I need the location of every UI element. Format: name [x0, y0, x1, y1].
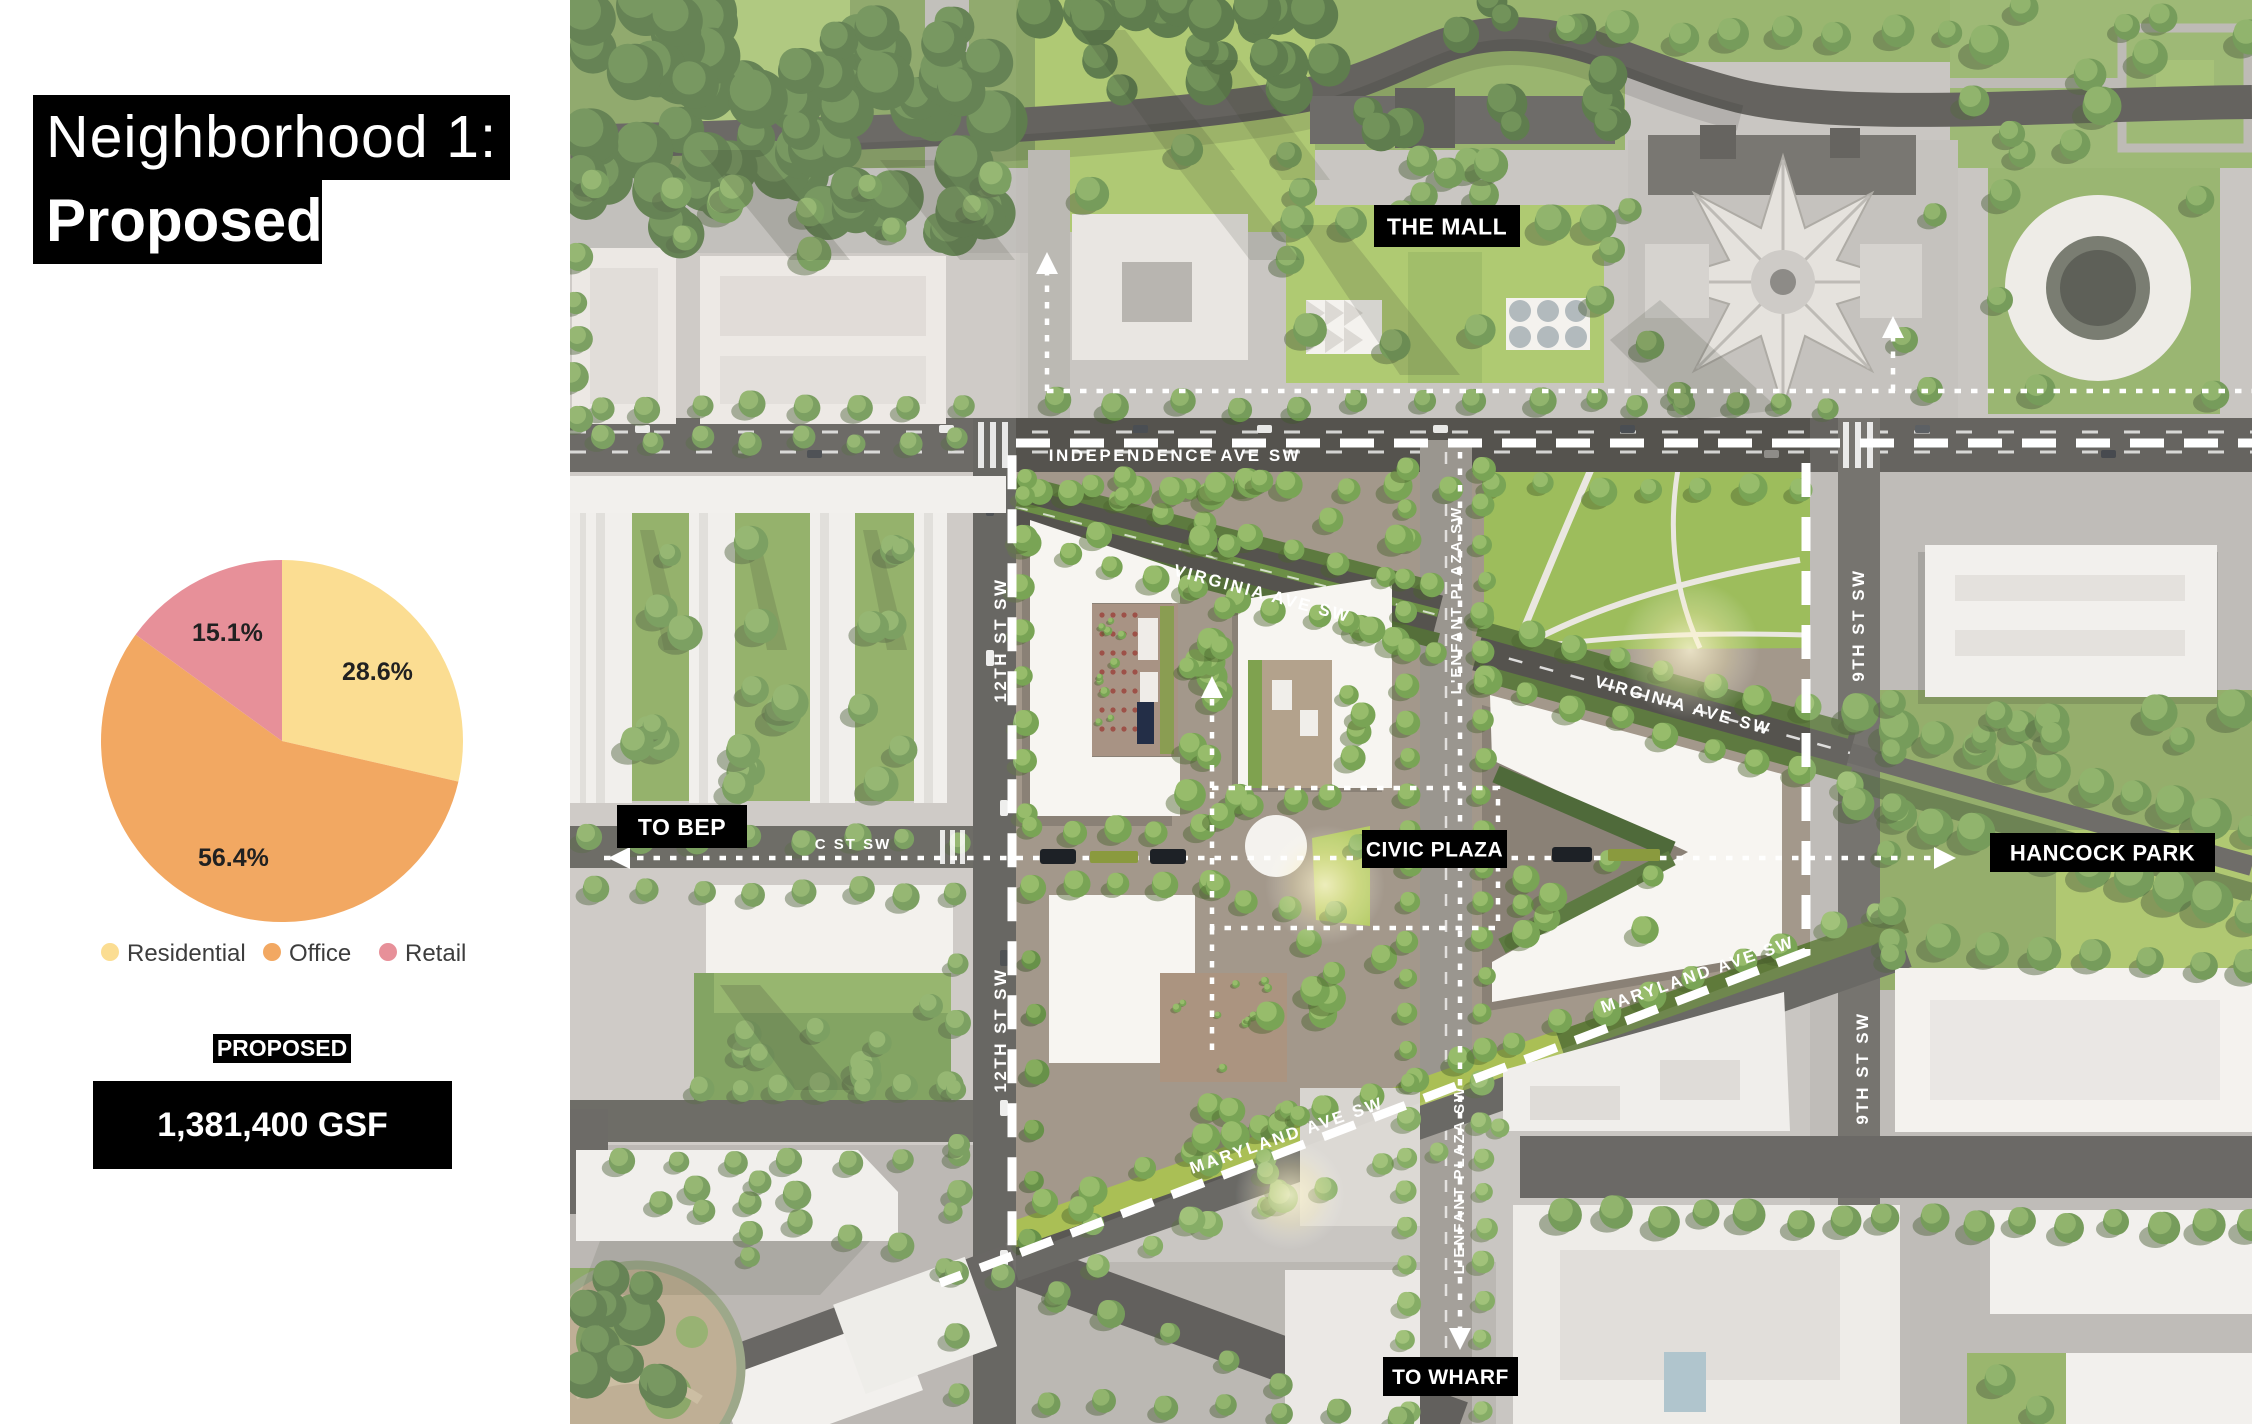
svg-text:THE MALL: THE MALL — [1387, 213, 1507, 239]
svg-text:15.1%: 15.1% — [192, 619, 263, 647]
svg-text:INDEPENDENCE AVE SW: INDEPENDENCE AVE SW — [1049, 446, 1301, 465]
svg-text:Office: Office — [289, 940, 351, 967]
svg-text:CIVIC PLAZA: CIVIC PLAZA — [1366, 839, 1503, 862]
svg-text:L'ENFANT PLAZA SW: L'ENFANT PLAZA SW — [1451, 1086, 1468, 1275]
svg-text:9TH ST SW: 9TH ST SW — [1849, 568, 1868, 681]
svg-text:Residential: Residential — [127, 940, 246, 967]
svg-text:HANCOCK PARK: HANCOCK PARK — [2010, 840, 2195, 865]
svg-text:9TH ST SW: 9TH ST SW — [1853, 1011, 1872, 1124]
svg-text:28.6%: 28.6% — [342, 658, 413, 686]
svg-text:12TH ST SW: 12TH ST SW — [991, 577, 1010, 702]
svg-text:12TH ST SW: 12TH ST SW — [991, 967, 1010, 1092]
svg-text:Retail: Retail — [405, 940, 466, 967]
svg-text:C ST SW: C ST SW — [815, 836, 892, 853]
svg-text:TO BEP: TO BEP — [638, 814, 726, 840]
svg-text:TO WHARF: TO WHARF — [1392, 1366, 1509, 1389]
svg-text:56.4%: 56.4% — [198, 844, 269, 872]
svg-text:L'ENFANT PLAZA SW: L'ENFANT PLAZA SW — [1448, 506, 1465, 695]
